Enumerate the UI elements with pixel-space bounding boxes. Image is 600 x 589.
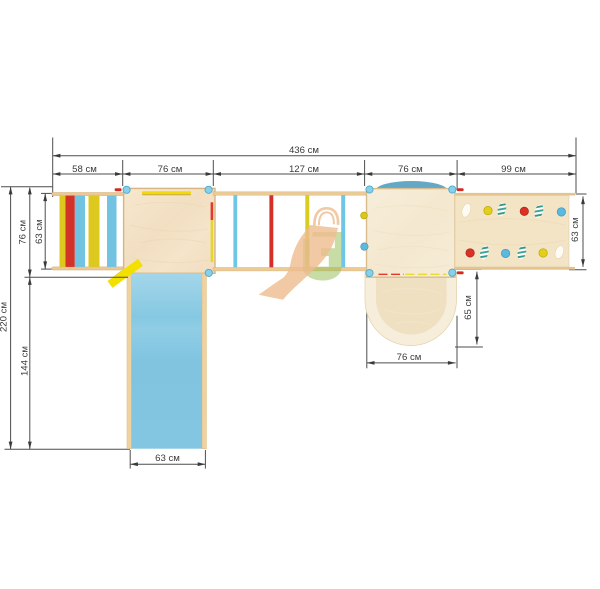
svg-text:63 см: 63 см	[34, 219, 45, 244]
svg-text:436 см: 436 см	[289, 145, 319, 156]
svg-text:76 см: 76 см	[398, 164, 423, 175]
svg-text:63 см: 63 см	[155, 453, 180, 464]
svg-text:76 см: 76 см	[18, 220, 29, 245]
svg-text:76 см: 76 см	[158, 164, 183, 175]
svg-text:127 см: 127 см	[289, 164, 319, 175]
svg-text:220 см: 220 см	[0, 302, 10, 332]
svg-text:63 см: 63 см	[570, 217, 581, 242]
svg-text:144 см: 144 см	[20, 346, 31, 376]
svg-text:76 см: 76 см	[397, 352, 422, 363]
svg-text:65 см: 65 см	[463, 295, 474, 320]
svg-text:99 см: 99 см	[501, 164, 526, 175]
svg-text:58 см: 58 см	[72, 164, 97, 175]
